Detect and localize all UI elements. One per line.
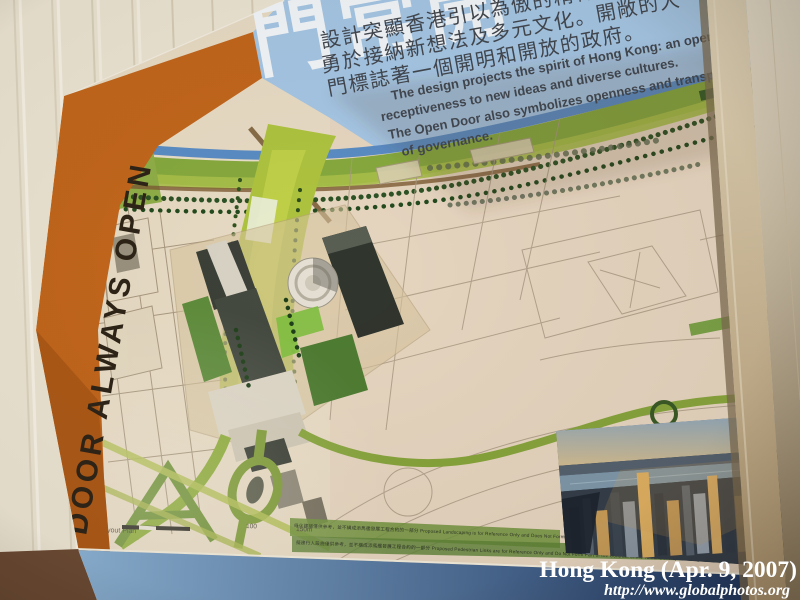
photo-vignette — [0, 0, 800, 600]
exhibition-photo: 總平面圖 Master Layout Plan 100 150m 綠化建議僅供參… — [0, 0, 800, 600]
scene: 總平面圖 Master Layout Plan 100 150m 綠化建議僅供參… — [0, 0, 800, 600]
watermark-caption: Hong Kong (Apr. 9, 2007) — [539, 557, 797, 583]
watermark-url: http://www.globalphotos.org — [604, 582, 790, 599]
